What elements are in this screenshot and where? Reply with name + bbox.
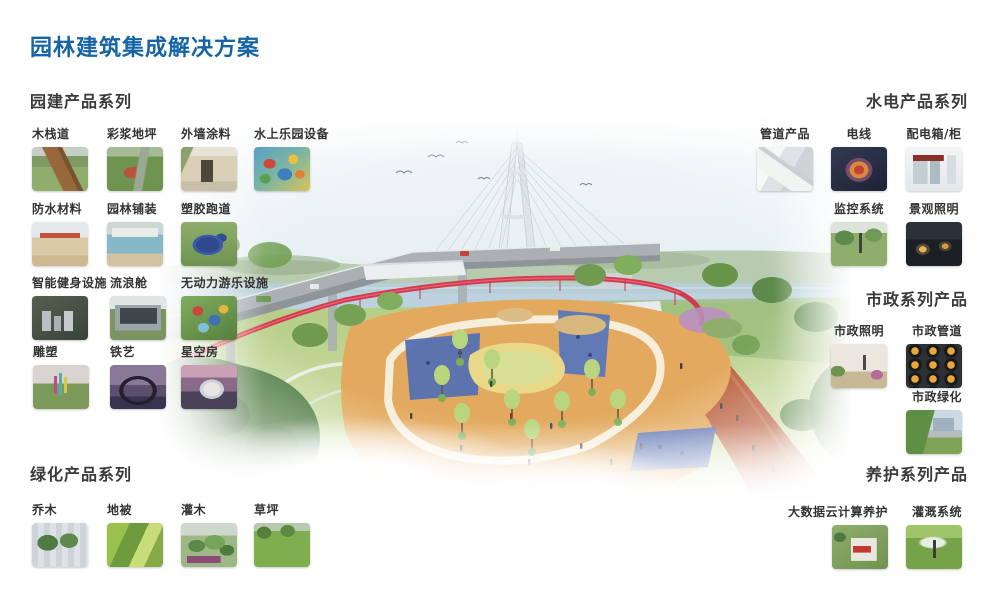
product-label: 草坪 — [254, 501, 279, 518]
product-label: 大数据云计算养护 — [788, 503, 888, 520]
municipal-lighting-photo — [831, 344, 887, 388]
pipeline-products-photo — [757, 147, 813, 191]
product-label: 木栈道 — [32, 125, 70, 142]
product-label: 星空房 — [181, 343, 219, 360]
section-heading-municipal: 市政系列产品 — [866, 286, 968, 310]
product-item-municipal-lighting: 市政照明 — [831, 344, 887, 388]
section-heading-maintenance: 养护系列产品 — [866, 461, 968, 485]
product-label: 市政绿化 — [912, 388, 962, 405]
waterproof-materials-photo — [32, 222, 88, 266]
rubber-track-photo — [181, 222, 237, 266]
exterior-wall-coating-photo — [181, 147, 237, 191]
shrub-photo — [181, 523, 237, 567]
ironwork-photo — [110, 365, 166, 409]
product-label: 市政照明 — [834, 322, 884, 339]
electric-wire-photo — [831, 147, 887, 191]
water-park-equipment-photo — [254, 147, 310, 191]
product-label: 电线 — [846, 125, 871, 142]
irrigation-system-photo — [906, 525, 962, 569]
colored-paste-flooring-photo — [107, 147, 163, 191]
section-heading-hydro: 水电产品系列 — [866, 88, 968, 112]
product-label: 管道产品 — [760, 125, 810, 142]
product-item-smart-fitness-facilities: 智能健身设施 — [32, 296, 88, 340]
product-item-shrub: 灌木 — [181, 523, 237, 567]
product-label: 景观照明 — [909, 200, 959, 217]
product-label: 园林铺装 — [107, 200, 157, 217]
product-label: 灌木 — [181, 501, 206, 518]
product-item-wood-boardwalk: 木栈道 — [32, 147, 88, 191]
product-item-exterior-wall-coating: 外墙涂料 — [181, 147, 237, 191]
product-item-arbor-tree: 乔木 — [32, 523, 88, 567]
product-item-pipeline-products: 管道产品 — [757, 147, 813, 191]
product-item-rubber-track: 塑胶跑道 — [181, 222, 237, 266]
product-item-municipal-pipeline: 市政管道 — [906, 344, 962, 388]
product-item-starry-sky-room: 星空房 — [181, 365, 237, 409]
product-item-municipal-greening: 市政绿化 — [906, 410, 962, 454]
municipal-greening-photo — [906, 410, 962, 454]
product-label: 无动力游乐设施 — [181, 274, 269, 291]
smart-fitness-facilities-photo — [32, 296, 88, 340]
arbor-tree-photo — [32, 523, 88, 567]
non-powered-play-equipment-photo — [181, 296, 237, 340]
product-item-water-park-equipment: 水上乐园设备 — [254, 147, 310, 191]
wood-boardwalk-photo — [32, 147, 88, 191]
product-label: 彩浆地坪 — [107, 125, 157, 142]
product-label: 雕塑 — [33, 343, 58, 360]
product-label: 流浪舱 — [110, 274, 148, 291]
distribution-box-photo — [906, 147, 962, 191]
product-item-ironwork: 铁艺 — [110, 365, 166, 409]
product-item-big-data-cloud-maintenance: 大数据云计算养护 — [832, 525, 888, 569]
monitoring-system-photo — [831, 222, 887, 266]
product-item-sculpture: 雕塑 — [33, 365, 89, 409]
starry-sky-room-photo — [181, 365, 237, 409]
product-label: 水上乐园设备 — [254, 125, 329, 142]
page-title: 园林建筑集成解决方案 — [30, 30, 260, 62]
landscape-lighting-photo — [906, 222, 962, 266]
product-item-garden-paving: 园林铺装 — [107, 222, 163, 266]
product-label: 塑胶跑道 — [181, 200, 231, 217]
product-label: 地被 — [107, 501, 132, 518]
product-item-wandering-cabin: 流浪舱 — [110, 296, 166, 340]
section-heading-garden: 园建产品系列 — [30, 88, 132, 112]
ground-cover-photo — [107, 523, 163, 567]
product-label: 防水材料 — [32, 200, 82, 217]
product-item-landscape-lighting: 景观照明 — [906, 222, 962, 266]
product-item-colored-paste-flooring: 彩浆地坪 — [107, 147, 163, 191]
product-label: 铁艺 — [110, 343, 135, 360]
product-label: 灌溉系统 — [912, 503, 962, 520]
product-item-waterproof-materials: 防水材料 — [32, 222, 88, 266]
product-item-irrigation-system: 灌溉系统 — [906, 525, 962, 569]
product-label: 市政管道 — [912, 322, 962, 339]
product-label: 智能健身设施 — [32, 274, 107, 291]
sculpture-photo — [33, 365, 89, 409]
product-label: 监控系统 — [834, 200, 884, 217]
big-data-cloud-maintenance-photo — [832, 525, 888, 569]
section-heading-greening: 绿化产品系列 — [30, 461, 132, 485]
municipal-pipeline-photo — [906, 344, 962, 388]
lawn-photo — [254, 523, 310, 567]
product-item-distribution-box: 配电箱/柜 — [906, 147, 962, 191]
wandering-cabin-photo — [110, 296, 166, 340]
product-item-monitoring-system: 监控系统 — [831, 222, 887, 266]
product-item-non-powered-play-equipment: 无动力游乐设施 — [181, 296, 237, 340]
product-label: 乔木 — [32, 501, 57, 518]
product-label: 外墙涂料 — [181, 125, 231, 142]
product-item-ground-cover: 地被 — [107, 523, 163, 567]
slide: 园林建筑集成解决方案 — [0, 0, 1000, 595]
garden-paving-photo — [107, 222, 163, 266]
product-item-electric-wire: 电线 — [831, 147, 887, 191]
product-label: 配电箱/柜 — [907, 125, 962, 142]
product-item-lawn: 草坪 — [254, 523, 310, 567]
